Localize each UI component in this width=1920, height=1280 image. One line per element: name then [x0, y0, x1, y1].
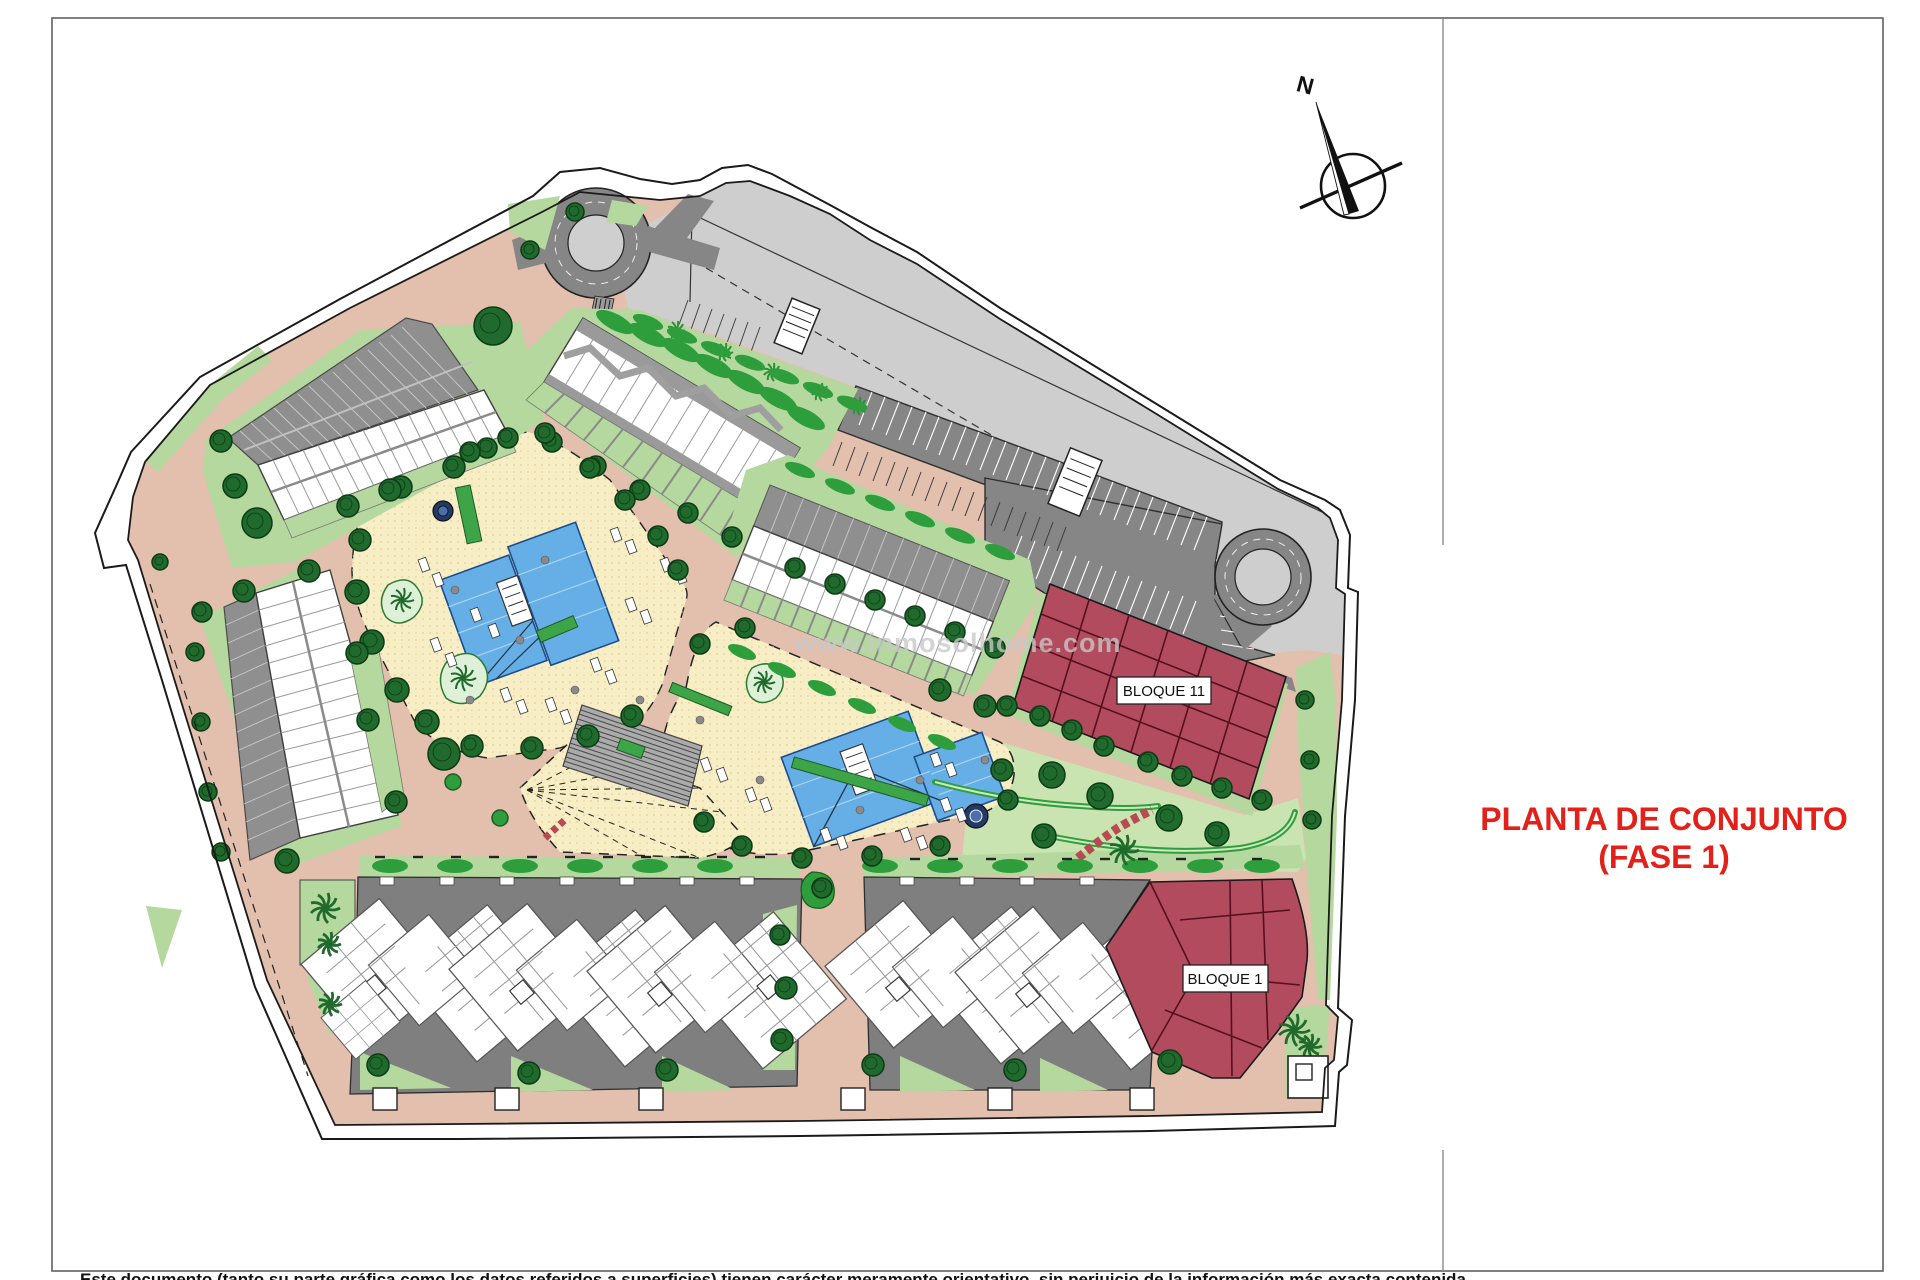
svg-text:PLANTA DE CONJUNTO: PLANTA DE CONJUNTO [1480, 801, 1847, 837]
svg-text:Este documento (tanto su parte: Este documento (tanto su parte gráfica c… [80, 1270, 1466, 1280]
svg-text:(FASE 1): (FASE 1) [1598, 839, 1730, 875]
svg-text:BLOQUE 1: BLOQUE 1 [1187, 971, 1262, 988]
svg-text:BLOQUE 11: BLOQUE 11 [1123, 683, 1205, 700]
svg-text:www.inmosolhome.com: www.inmosolhome.com [793, 628, 1121, 658]
